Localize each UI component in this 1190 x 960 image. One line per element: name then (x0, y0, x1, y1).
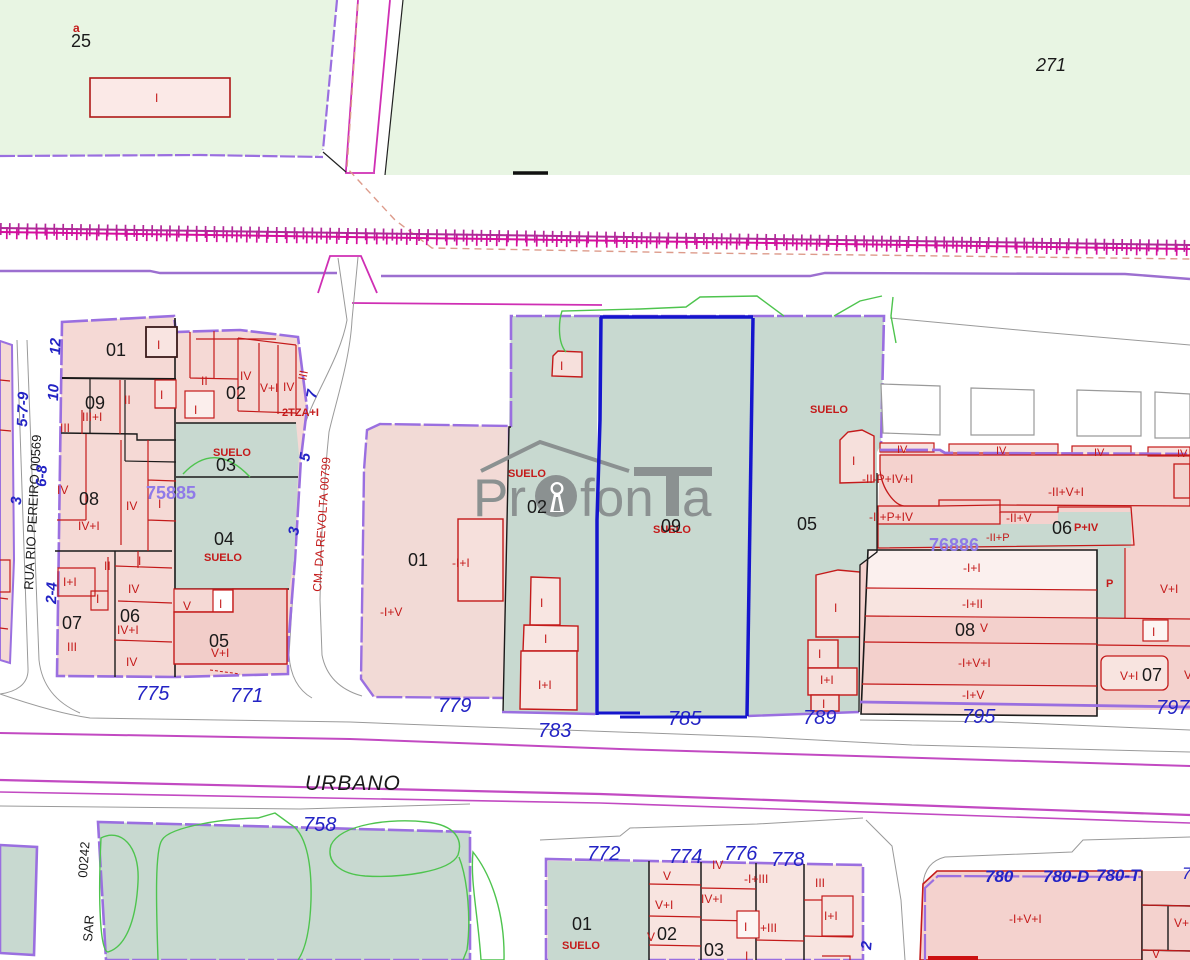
svg-text:SUELO: SUELO (810, 404, 848, 416)
svg-text:I: I (834, 601, 837, 615)
svg-text:V: V (980, 621, 988, 635)
svg-text:IV: IV (283, 380, 294, 394)
svg-text:-I+II: -I+II (962, 597, 983, 611)
svg-text:-I+V+I: -I+V+I (1009, 912, 1042, 926)
svg-text:01: 01 (572, 914, 592, 934)
svg-text:SUELO: SUELO (562, 940, 600, 952)
svg-text:I: I (744, 920, 747, 934)
svg-text:I: I (745, 949, 748, 960)
svg-text:-I+V: -I+V (962, 688, 984, 702)
svg-text:10: 10 (45, 383, 63, 401)
svg-text:URBANO: URBANO (305, 772, 401, 795)
svg-text:I: I (544, 632, 547, 646)
svg-text:6-8: 6-8 (33, 464, 51, 487)
svg-text:03: 03 (704, 940, 724, 960)
svg-text:I: I (852, 454, 855, 468)
svg-text:IV+I: IV+I (78, 519, 100, 533)
svg-text:-I+V: -I+V (380, 605, 402, 619)
svg-text:271: 271 (1035, 55, 1066, 75)
svg-text:III: III (815, 876, 825, 890)
svg-text:3: 3 (8, 496, 25, 506)
svg-text:780-T: 780-T (1096, 866, 1142, 885)
svg-text:780-D: 780-D (1043, 867, 1089, 886)
svg-text:771: 771 (230, 685, 263, 707)
svg-text:P: P (1106, 578, 1113, 590)
svg-text:I: I (138, 554, 141, 568)
svg-text:SUELO: SUELO (204, 552, 242, 564)
svg-text:IV: IV (57, 483, 68, 497)
svg-text:IV: IV (996, 445, 1007, 457)
svg-text:a: a (682, 469, 712, 528)
svg-text:-II+P+IV: -II+P+IV (869, 510, 913, 524)
svg-text:V+I: V+I (1160, 582, 1178, 596)
svg-text:I+I: I+I (824, 909, 838, 923)
svg-text:01: 01 (106, 340, 126, 360)
svg-text:02: 02 (226, 383, 246, 403)
svg-text:I: I (1152, 625, 1155, 639)
svg-text:IV: IV (240, 369, 251, 383)
svg-text:5-7-9: 5-7-9 (14, 391, 32, 427)
svg-text:7: 7 (1182, 864, 1190, 883)
svg-text:IV: IV (1177, 448, 1188, 460)
svg-text:III: III (60, 421, 70, 435)
svg-text:-II+P: -II+P (986, 532, 1010, 544)
svg-text:III: III (67, 640, 77, 654)
svg-text:IV: IV (712, 858, 723, 872)
svg-text:08: 08 (955, 620, 975, 640)
svg-text:V+: V+ (1174, 916, 1189, 930)
svg-text:IV: IV (128, 582, 139, 596)
svg-text:-I+I: -I+I (452, 556, 470, 570)
svg-text:I: I (818, 647, 821, 661)
svg-text:01: 01 (408, 550, 428, 570)
svg-text:778: 778 (771, 849, 804, 871)
svg-text:SUELO: SUELO (508, 468, 546, 480)
svg-text:-I+III: -I+III (744, 872, 768, 886)
svg-text:-I+V+I: -I+V+I (958, 656, 991, 670)
svg-text:IV: IV (126, 655, 137, 669)
svg-text:76886: 76886 (929, 535, 979, 555)
svg-text:07: 07 (1142, 665, 1162, 685)
svg-text:08: 08 (79, 489, 99, 509)
svg-text:I: I (560, 359, 563, 373)
svg-text:09: 09 (661, 516, 681, 536)
svg-text:783: 783 (538, 720, 571, 742)
svg-text:776: 776 (724, 843, 758, 865)
svg-text:IV: IV (126, 499, 137, 513)
svg-text:07: 07 (62, 613, 82, 633)
svg-text:I: I (157, 338, 160, 352)
svg-text:775: 775 (136, 683, 170, 705)
svg-text:V+I: V+I (655, 898, 673, 912)
svg-text:25: 25 (71, 31, 91, 51)
svg-text:V: V (647, 930, 655, 944)
svg-text:SAR: SAR (80, 914, 97, 942)
svg-text:I: I (540, 596, 543, 610)
svg-text:P+IV: P+IV (1074, 522, 1099, 534)
svg-text:2-4: 2-4 (43, 581, 61, 605)
svg-text:-I+I: -I+I (963, 561, 981, 575)
svg-text:I: I (219, 597, 222, 611)
svg-text:V: V (1152, 947, 1160, 960)
svg-text:V: V (1184, 668, 1190, 682)
svg-text:75885: 75885 (146, 483, 196, 503)
svg-text:V: V (183, 599, 191, 613)
svg-text:04: 04 (214, 529, 234, 549)
svg-text:V+I: V+I (1120, 669, 1138, 683)
svg-text:797: 797 (1156, 697, 1190, 719)
svg-text:V+I: V+I (211, 646, 229, 660)
svg-text:II: II (104, 559, 111, 573)
svg-text:2TZA+I: 2TZA+I (282, 407, 319, 419)
svg-text:V+I: V+I (260, 381, 278, 395)
svg-text:780: 780 (985, 867, 1014, 886)
svg-text:I+I: I+I (538, 678, 552, 692)
svg-text:I+I: I+I (820, 673, 834, 687)
svg-text:02: 02 (657, 924, 677, 944)
svg-text:I: I (160, 388, 163, 402)
svg-text:V: V (663, 869, 671, 883)
svg-text:779: 779 (438, 695, 471, 717)
svg-text:I: I (194, 403, 197, 417)
svg-text:I: I (96, 592, 99, 606)
svg-text:-II+V: -II+V (1006, 511, 1032, 525)
svg-text:fon: fon (580, 469, 654, 528)
svg-text:I: I (155, 91, 158, 105)
svg-text:06: 06 (1052, 518, 1072, 538)
svg-text:I: I (158, 497, 161, 511)
svg-text:772: 772 (587, 843, 620, 865)
svg-text:IV+I: IV+I (701, 892, 723, 906)
svg-text:758: 758 (303, 814, 336, 836)
svg-text:I+I: I+I (63, 575, 77, 589)
svg-text:774: 774 (669, 846, 702, 868)
svg-text:785: 785 (668, 708, 702, 730)
svg-text:02: 02 (527, 497, 547, 517)
svg-text:IV+I: IV+I (117, 623, 139, 637)
svg-text:795: 795 (962, 706, 996, 728)
svg-text:12: 12 (47, 337, 65, 355)
svg-text:IV: IV (897, 444, 908, 456)
svg-text:II: II (124, 393, 131, 407)
svg-text:-II-P+IV+I: -II-P+IV+I (862, 472, 913, 486)
svg-text:+III: +III (760, 921, 777, 935)
svg-text:II: II (201, 374, 208, 388)
svg-text:05: 05 (797, 514, 817, 534)
svg-text:03: 03 (216, 455, 236, 475)
svg-text:-II+V+I: -II+V+I (1048, 485, 1084, 499)
svg-text:789: 789 (803, 707, 836, 729)
svg-text:00242: 00242 (75, 841, 92, 878)
svg-text:III+I: III+I (82, 410, 102, 424)
svg-text:IV: IV (1094, 447, 1105, 459)
